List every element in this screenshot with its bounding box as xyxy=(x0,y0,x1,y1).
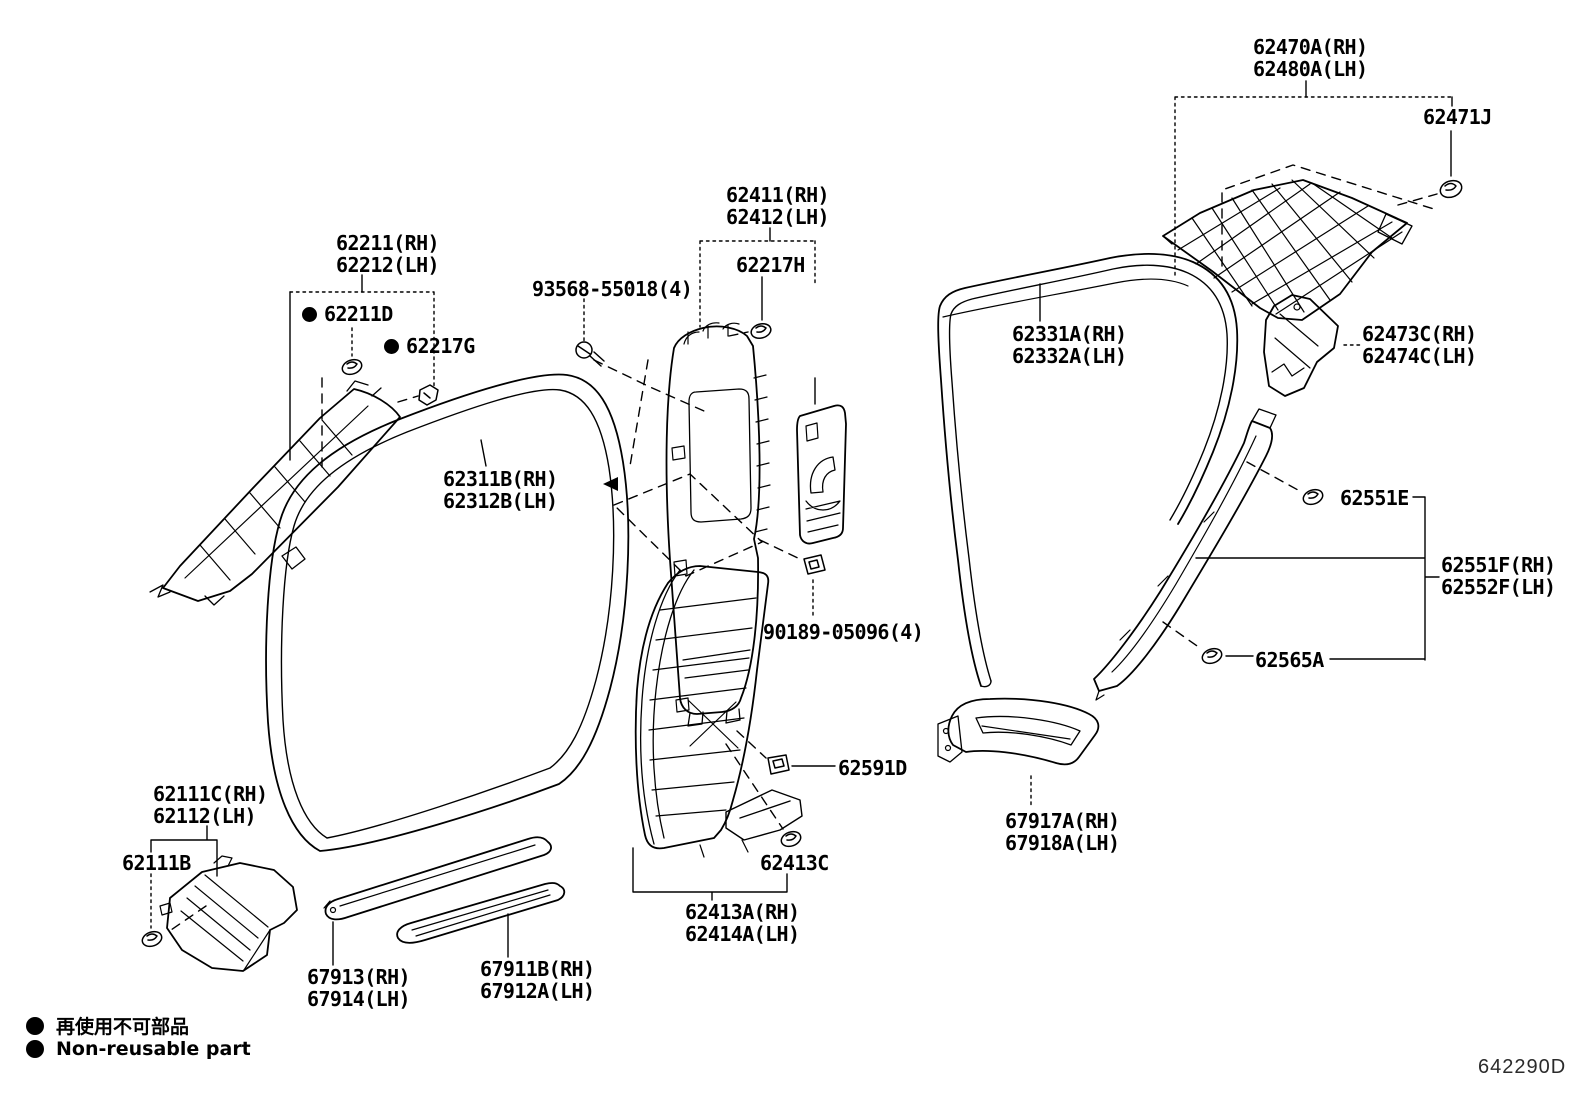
part-number: 62111C(RH) xyxy=(153,783,267,805)
part-label-67917A: 67917A(RH) 67918A(LH) xyxy=(1005,810,1119,854)
part-label-62413C: 62413C xyxy=(760,852,829,874)
part-number: 62211D xyxy=(324,303,393,325)
non-reusable-dot-icon xyxy=(302,307,317,322)
leader-62591D-dashed xyxy=(737,731,766,758)
leader-93568-dashed xyxy=(594,360,704,411)
part-number: 67911B(RH) xyxy=(480,958,594,980)
seat-belt-anchor-cover xyxy=(797,405,846,543)
rear-door-scuff-plate xyxy=(938,699,1098,765)
part-number: 62111B xyxy=(122,852,191,874)
part-number: 93568-55018(4) xyxy=(532,278,692,300)
leader-62311B xyxy=(481,440,486,466)
part-label-62471J: 62471J xyxy=(1423,106,1492,128)
front-door-scuff-plate-outside xyxy=(397,883,564,943)
quarter-pillar-garnish xyxy=(1163,180,1412,320)
part-number: 67918A(LH) xyxy=(1005,832,1119,854)
part-number: 62474C(LH) xyxy=(1362,345,1476,367)
part-number: 67912A(LH) xyxy=(480,980,594,1002)
part-label-62211D: 62211D xyxy=(302,303,393,325)
clip-62211D xyxy=(340,357,364,377)
part-label-62591D: 62591D xyxy=(838,757,907,779)
leader-62565A-dashed xyxy=(1163,622,1200,648)
legend-text-ja: 再使用不可部品 xyxy=(56,1012,189,1039)
part-label-62211: 62211(RH) 62212(LH) xyxy=(336,232,439,276)
leader-62470-box-dotted xyxy=(1175,97,1452,278)
leader-90189-dashed xyxy=(760,540,800,559)
part-label-62311B: 62311B(RH) 62312B(LH) xyxy=(443,468,557,512)
part-label-62111C: 62111C(RH) 62112(LH) xyxy=(153,783,267,827)
clip-62471J xyxy=(1438,178,1464,201)
part-number: 62112(LH) xyxy=(153,805,267,827)
leader-landing-dashed xyxy=(614,474,762,576)
front-door-scuff-plate xyxy=(324,837,551,919)
clip-62413C xyxy=(779,829,803,849)
part-label-62470A: 62470A(RH) 62480A(LH) xyxy=(1253,36,1367,80)
part-number: 62551E xyxy=(1340,487,1409,509)
part-label-90189-05096: 90189-05096(4) xyxy=(763,621,923,643)
leader-bpillar-dashed xyxy=(630,360,648,466)
part-number: 62414A(LH) xyxy=(685,923,799,945)
non-reusable-dot-icon xyxy=(26,1040,44,1058)
front-door-opening-weatherstrip xyxy=(266,375,628,851)
part-number: 62212(LH) xyxy=(336,254,439,276)
part-number: 62470A(RH) xyxy=(1253,36,1367,58)
part-number: 67913(RH) xyxy=(307,966,410,988)
figure-code: 642290D xyxy=(1478,1056,1566,1079)
part-number: 62565A xyxy=(1255,649,1324,671)
part-number: 62412(LH) xyxy=(726,206,829,228)
center-pillar-garnish-upper xyxy=(667,323,770,726)
part-label-62413A: 62413A(RH) 62414A(LH) xyxy=(685,901,799,945)
part-number: 62480A(LH) xyxy=(1253,58,1367,80)
part-label-62217G: 62217G xyxy=(384,335,475,357)
clip-62551E xyxy=(1301,487,1325,507)
parts-diagram-body-side-trim: 62470A(RH) 62480A(LH) 62471J 62411(RH) 6… xyxy=(0,0,1592,1099)
leader-cowl-dashed xyxy=(168,906,206,932)
part-label-62331A: 62331A(RH) 62332A(LH) xyxy=(1012,323,1126,367)
part-label-62111B: 62111B xyxy=(122,852,191,874)
clip-62111B xyxy=(140,929,164,949)
part-label-62565A: 62565A xyxy=(1255,649,1324,671)
clip-62217H xyxy=(750,322,773,341)
leader-62551F-bracket xyxy=(1196,497,1439,660)
leader-62471J-dashed xyxy=(1398,194,1437,205)
rear-door-opening-weatherstrip xyxy=(938,254,1237,687)
part-number: 62551F(RH) xyxy=(1441,554,1555,576)
part-label-62551E: 62551E xyxy=(1340,487,1409,509)
part-number: 62331A(RH) xyxy=(1012,323,1126,345)
leader-62211D-dashed xyxy=(322,378,418,468)
legend-non-reusable-en: Non-reusable part xyxy=(26,1038,251,1060)
clip-62217G xyxy=(419,385,438,405)
clip-62565A xyxy=(1200,646,1224,666)
part-label-62551F: 62551F(RH) 62552F(LH) xyxy=(1441,554,1555,598)
part-label-93568-55018: 93568-55018(4) xyxy=(532,278,692,300)
part-number: 90189-05096(4) xyxy=(763,621,923,643)
part-number: 62217H xyxy=(736,254,805,276)
part-number: 62413A(RH) xyxy=(685,901,799,923)
part-number: 62312B(LH) xyxy=(443,490,557,512)
non-reusable-dot-icon xyxy=(26,1017,44,1035)
part-number: 67914(LH) xyxy=(307,988,410,1010)
part-label-62473C: 62473C(RH) 62474C(LH) xyxy=(1362,323,1476,367)
part-number: 67917A(RH) xyxy=(1005,810,1119,832)
clip-90189 xyxy=(804,555,825,574)
legend-non-reusable-ja: 再使用不可部品 xyxy=(26,1012,189,1039)
part-label-67911B: 67911B(RH) 67912A(LH) xyxy=(480,958,594,1002)
part-number: 62332A(LH) xyxy=(1012,345,1126,367)
part-number: 62211(RH) xyxy=(336,232,439,254)
part-number: 62473C(RH) xyxy=(1362,323,1476,345)
part-number: 62413C xyxy=(760,852,829,874)
part-label-62411: 62411(RH) 62412(LH) xyxy=(726,184,829,228)
quarter-pillar-bracket xyxy=(1264,295,1338,396)
part-number: 62591D xyxy=(838,757,907,779)
part-number: 62217G xyxy=(406,335,475,357)
part-number: 62552F(LH) xyxy=(1441,576,1555,598)
windshield-pillar-garnish xyxy=(150,381,400,605)
clip-62591D xyxy=(768,755,789,774)
legend-text-en: Non-reusable part xyxy=(56,1038,251,1060)
part-number: 62471J xyxy=(1423,106,1492,128)
non-reusable-dot-icon xyxy=(384,339,399,354)
part-number: 62411(RH) xyxy=(726,184,829,206)
part-label-62217H: 62217H xyxy=(736,254,805,276)
part-label-67913: 67913(RH) 67914(LH) xyxy=(307,966,410,1010)
part-number: 62311B(RH) xyxy=(443,468,557,490)
